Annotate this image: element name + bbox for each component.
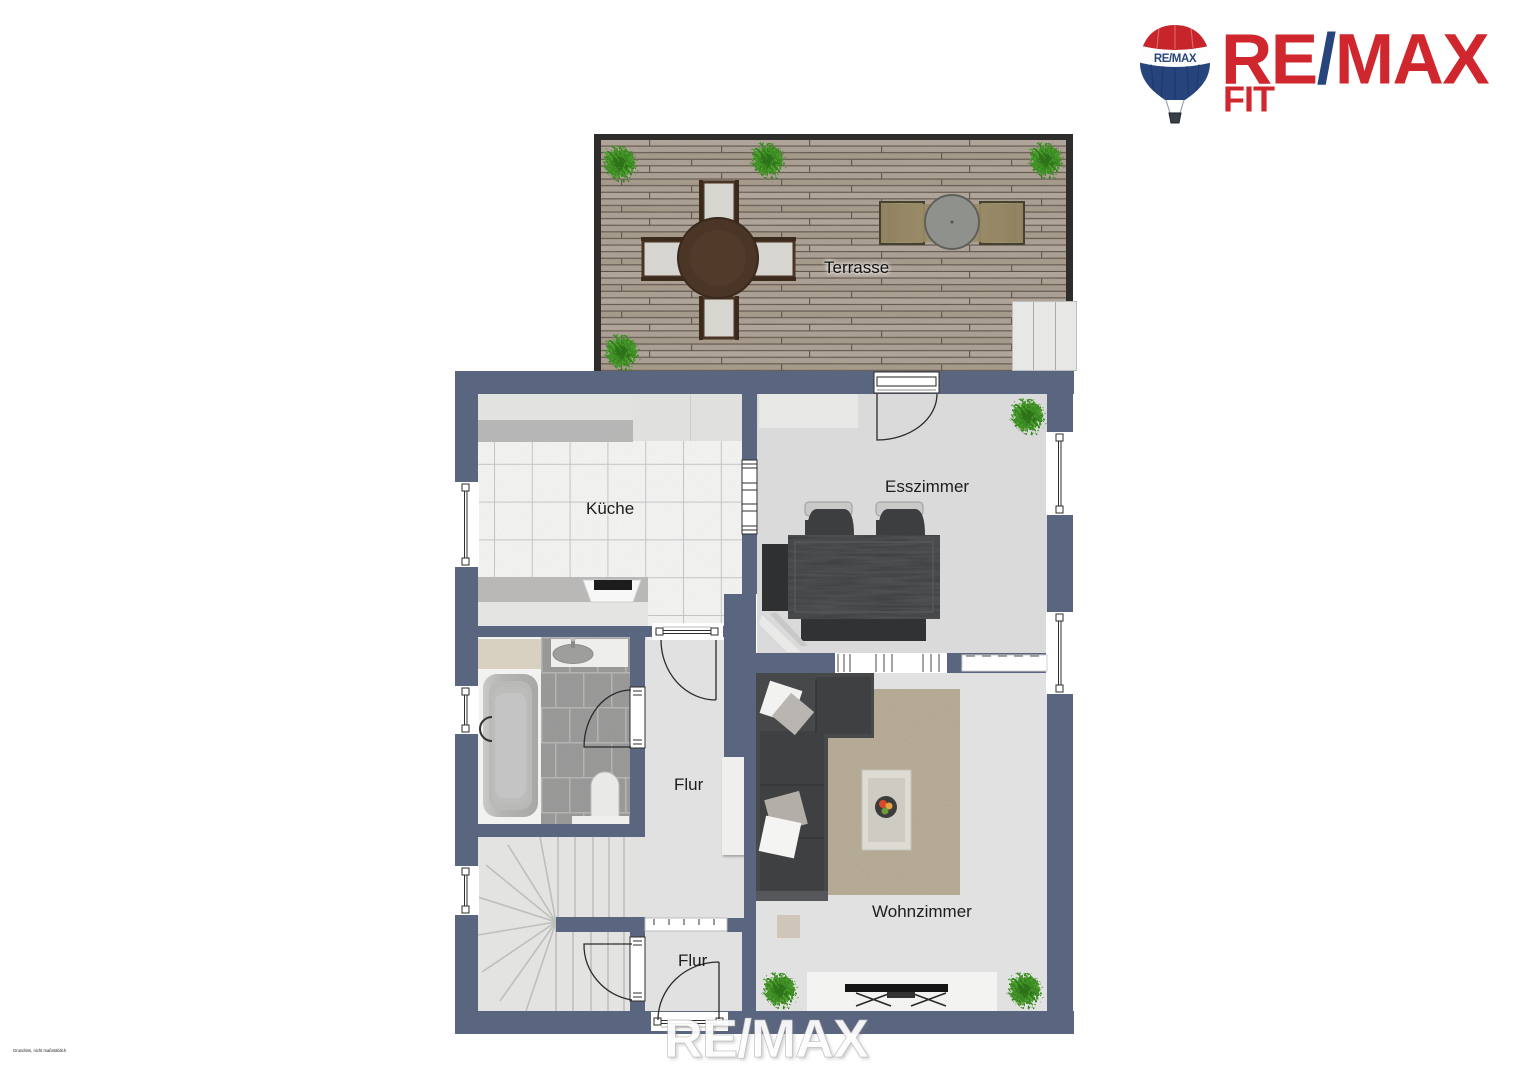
svg-text:FIT: FIT	[1223, 79, 1275, 120]
svg-text:RE/MAX: RE/MAX	[1154, 53, 1197, 65]
